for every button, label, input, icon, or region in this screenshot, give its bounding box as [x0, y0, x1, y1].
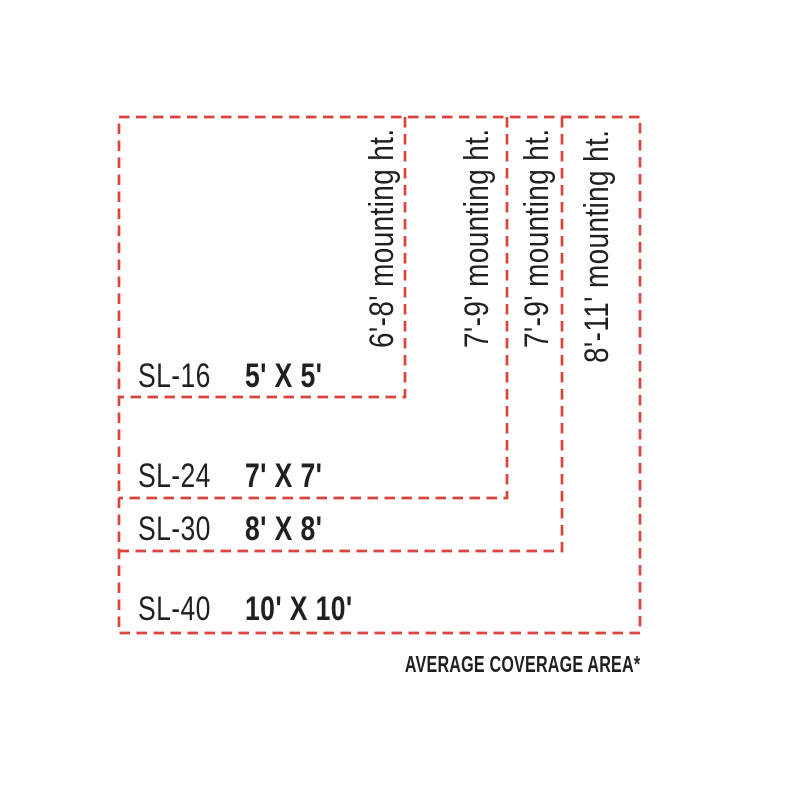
coverage-size-label: 8' X 8' — [245, 512, 322, 546]
model-label: SL-30 — [138, 512, 211, 546]
mounting-height-label-sl-16: 6'-8' mounting ht. — [365, 128, 399, 348]
model-label: SL-40 — [138, 592, 211, 626]
model-label: SL-16 — [138, 359, 211, 393]
mounting-height-label-sl-40: 8'-11' mounting ht. — [580, 130, 614, 363]
product-row-sl-30: SL-30 8' X 8' — [138, 512, 322, 546]
product-row-sl-24: SL-24 7' X 7' — [138, 459, 322, 493]
coverage-boxes-canvas — [0, 0, 800, 800]
product-row-sl-16: SL-16 5' X 5' — [138, 359, 322, 393]
coverage-size-label: 10' X 10' — [245, 592, 353, 626]
product-row-sl-40: SL-40 10' X 10' — [138, 592, 353, 626]
coverage-diagram: SL-16 5' X 5' SL-24 7' X 7' SL-30 8' X 8… — [0, 0, 800, 800]
coverage-size-label: 7' X 7' — [245, 459, 322, 493]
coverage-box-sl-24 — [119, 117, 507, 498]
average-coverage-caption: AVERAGE COVERAGE AREA* — [405, 653, 640, 676]
coverage-size-label: 5' X 5' — [245, 359, 322, 393]
mounting-height-label-sl-30: 7'-9' mounting ht. — [520, 128, 554, 348]
mounting-height-label-sl-24: 7'-9' mounting ht. — [460, 128, 494, 348]
model-label: SL-24 — [138, 459, 211, 493]
